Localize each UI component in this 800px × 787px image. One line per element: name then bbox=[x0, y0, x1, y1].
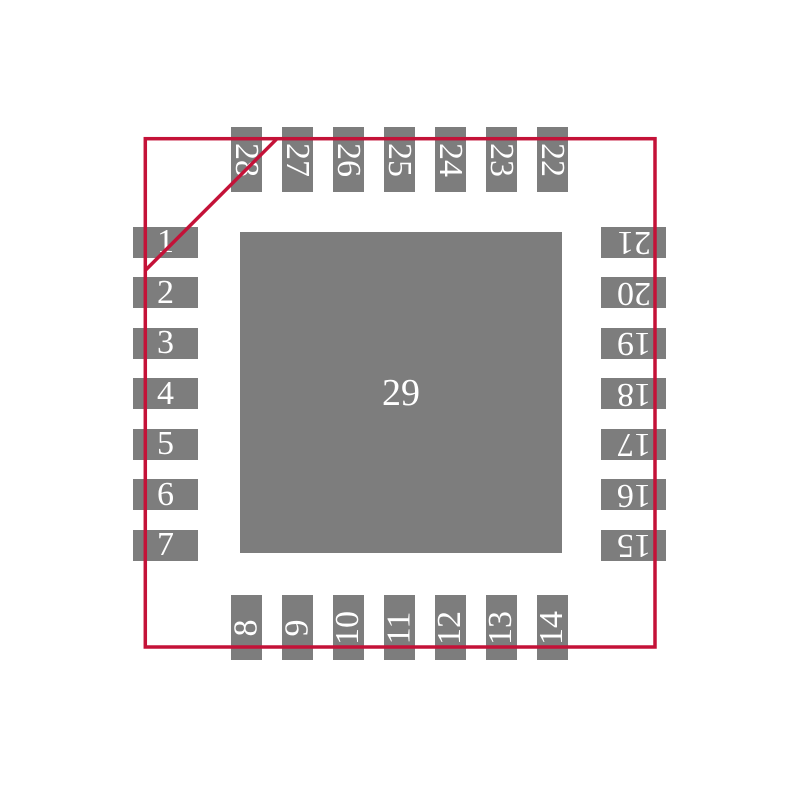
pad-9: 9 bbox=[282, 595, 313, 660]
pad-15-label: 15 bbox=[617, 528, 651, 562]
pad-2: 2 bbox=[133, 277, 198, 308]
pad-15: 15 bbox=[601, 530, 666, 561]
pad-12-label: 12 bbox=[433, 611, 467, 645]
pad-6-label: 6 bbox=[157, 478, 174, 512]
pad-24-label: 24 bbox=[433, 143, 467, 177]
pad-11: 11 bbox=[384, 595, 415, 660]
pad-2-label: 2 bbox=[157, 276, 174, 310]
pad-1-label: 1 bbox=[157, 225, 174, 259]
pad-23-label: 23 bbox=[484, 143, 518, 177]
pad-14-label: 14 bbox=[535, 611, 569, 645]
pad-11-label: 11 bbox=[382, 611, 416, 644]
pad-16-label: 16 bbox=[617, 478, 651, 512]
pad-14: 14 bbox=[537, 595, 568, 660]
pad-21-label: 21 bbox=[617, 225, 651, 259]
pad-20: 20 bbox=[601, 277, 666, 308]
pad-19-label: 19 bbox=[617, 326, 651, 360]
pad-16: 16 bbox=[601, 479, 666, 510]
pad-4: 4 bbox=[133, 378, 198, 409]
pad-8-label: 8 bbox=[229, 619, 263, 636]
pad-25: 25 bbox=[384, 127, 415, 192]
pad-3-label: 3 bbox=[157, 326, 174, 360]
pad-4-label: 4 bbox=[157, 377, 174, 411]
pad-27: 27 bbox=[282, 127, 313, 192]
pad-27-label: 27 bbox=[280, 143, 314, 177]
pad-6: 6 bbox=[133, 479, 198, 510]
pad-18: 18 bbox=[601, 378, 666, 409]
pad-20-label: 20 bbox=[617, 276, 651, 310]
pad-26-label: 26 bbox=[331, 143, 365, 177]
pad-22: 22 bbox=[537, 127, 568, 192]
pad-13-label: 13 bbox=[484, 611, 518, 645]
pad-21: 21 bbox=[601, 227, 666, 258]
center-pad-29: 29 bbox=[240, 232, 562, 553]
center-pad-29-label: 29 bbox=[382, 374, 420, 412]
pad-1: 1 bbox=[133, 227, 198, 258]
pad-3: 3 bbox=[133, 328, 198, 359]
pad-12: 12 bbox=[435, 595, 466, 660]
footprint-diagram: 29 1 2 3 4 5 6 7 8 9 10 11 12 13 14 21 2… bbox=[0, 0, 800, 787]
pad-17-label: 17 bbox=[617, 427, 651, 461]
pad-13: 13 bbox=[486, 595, 517, 660]
pad-26: 26 bbox=[333, 127, 364, 192]
pad-8: 8 bbox=[231, 595, 262, 660]
pad-23: 23 bbox=[486, 127, 517, 192]
pad-5-label: 5 bbox=[157, 427, 174, 461]
pad-7-label: 7 bbox=[157, 528, 174, 562]
pad-28: 28 bbox=[231, 127, 262, 192]
pad-18-label: 18 bbox=[617, 377, 651, 411]
pad-10: 10 bbox=[333, 595, 364, 660]
pad-28-label: 28 bbox=[229, 143, 263, 177]
pad-7: 7 bbox=[133, 530, 198, 561]
pad-5: 5 bbox=[133, 429, 198, 460]
pad-19: 19 bbox=[601, 328, 666, 359]
pad-25-label: 25 bbox=[382, 143, 416, 177]
pad-10-label: 10 bbox=[331, 611, 365, 645]
pad-24: 24 bbox=[435, 127, 466, 192]
pad-9-label: 9 bbox=[280, 619, 314, 636]
pad-17: 17 bbox=[601, 429, 666, 460]
pad-22-label: 22 bbox=[535, 143, 569, 177]
